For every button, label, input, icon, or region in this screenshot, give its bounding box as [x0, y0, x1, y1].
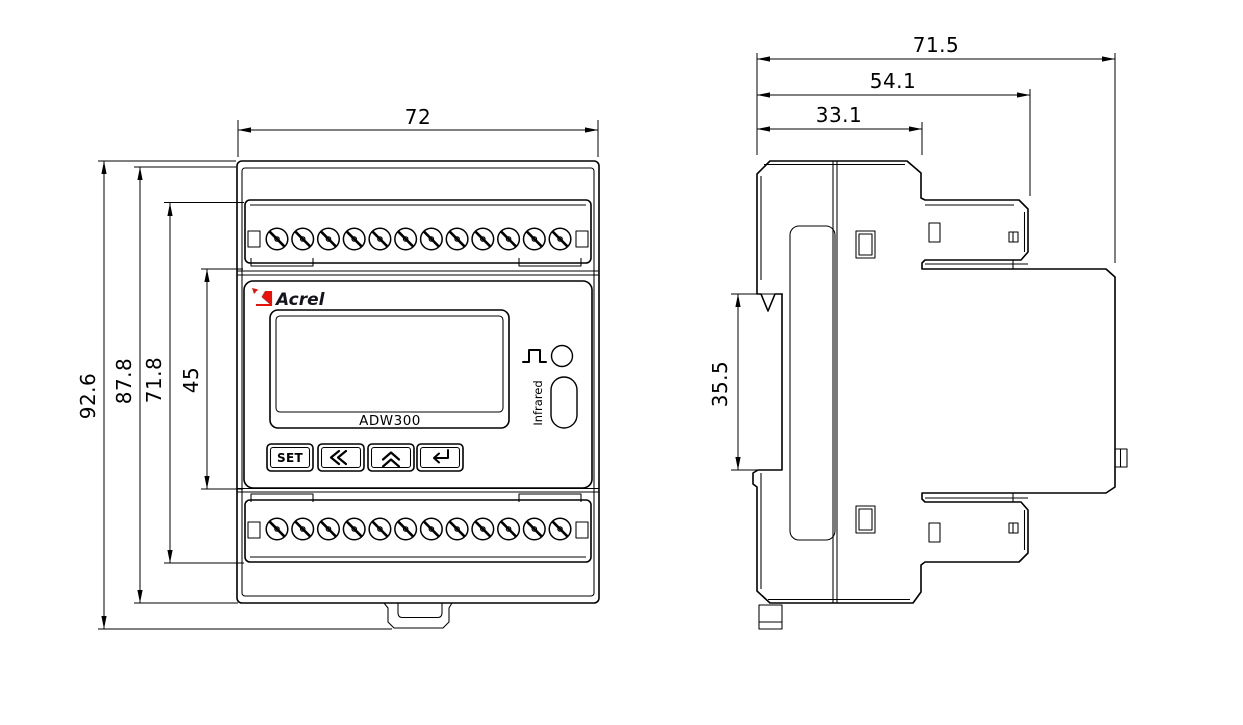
dim-panel-height-label: 45: [179, 367, 203, 393]
model-text: ADW300: [359, 413, 421, 429]
brand-text: Acrel: [274, 290, 326, 310]
set-button-label: SET: [277, 451, 303, 465]
drawing-svg: Acrel ADW300 Infrared SET: [0, 0, 1243, 725]
dim-body-depth-label: 33.1: [816, 103, 863, 127]
dim-width-label: 72: [405, 105, 431, 129]
dim-terminal-depth-label: 54.1: [870, 69, 917, 93]
dim-terminal-span-label: 71.8: [142, 357, 166, 404]
dim-overall-height-label: 92.6: [76, 373, 100, 420]
infrared-label: Infrared: [531, 380, 545, 425]
dim-overall-depth-label: 71.5: [913, 33, 960, 57]
dim-body-height-label: 87.8: [112, 358, 136, 405]
dim-rail-span-label: 35.5: [708, 361, 732, 408]
canvas-background: [0, 0, 1243, 725]
dimension-drawing-canvas: Acrel ADW300 Infrared SET: [0, 0, 1243, 725]
